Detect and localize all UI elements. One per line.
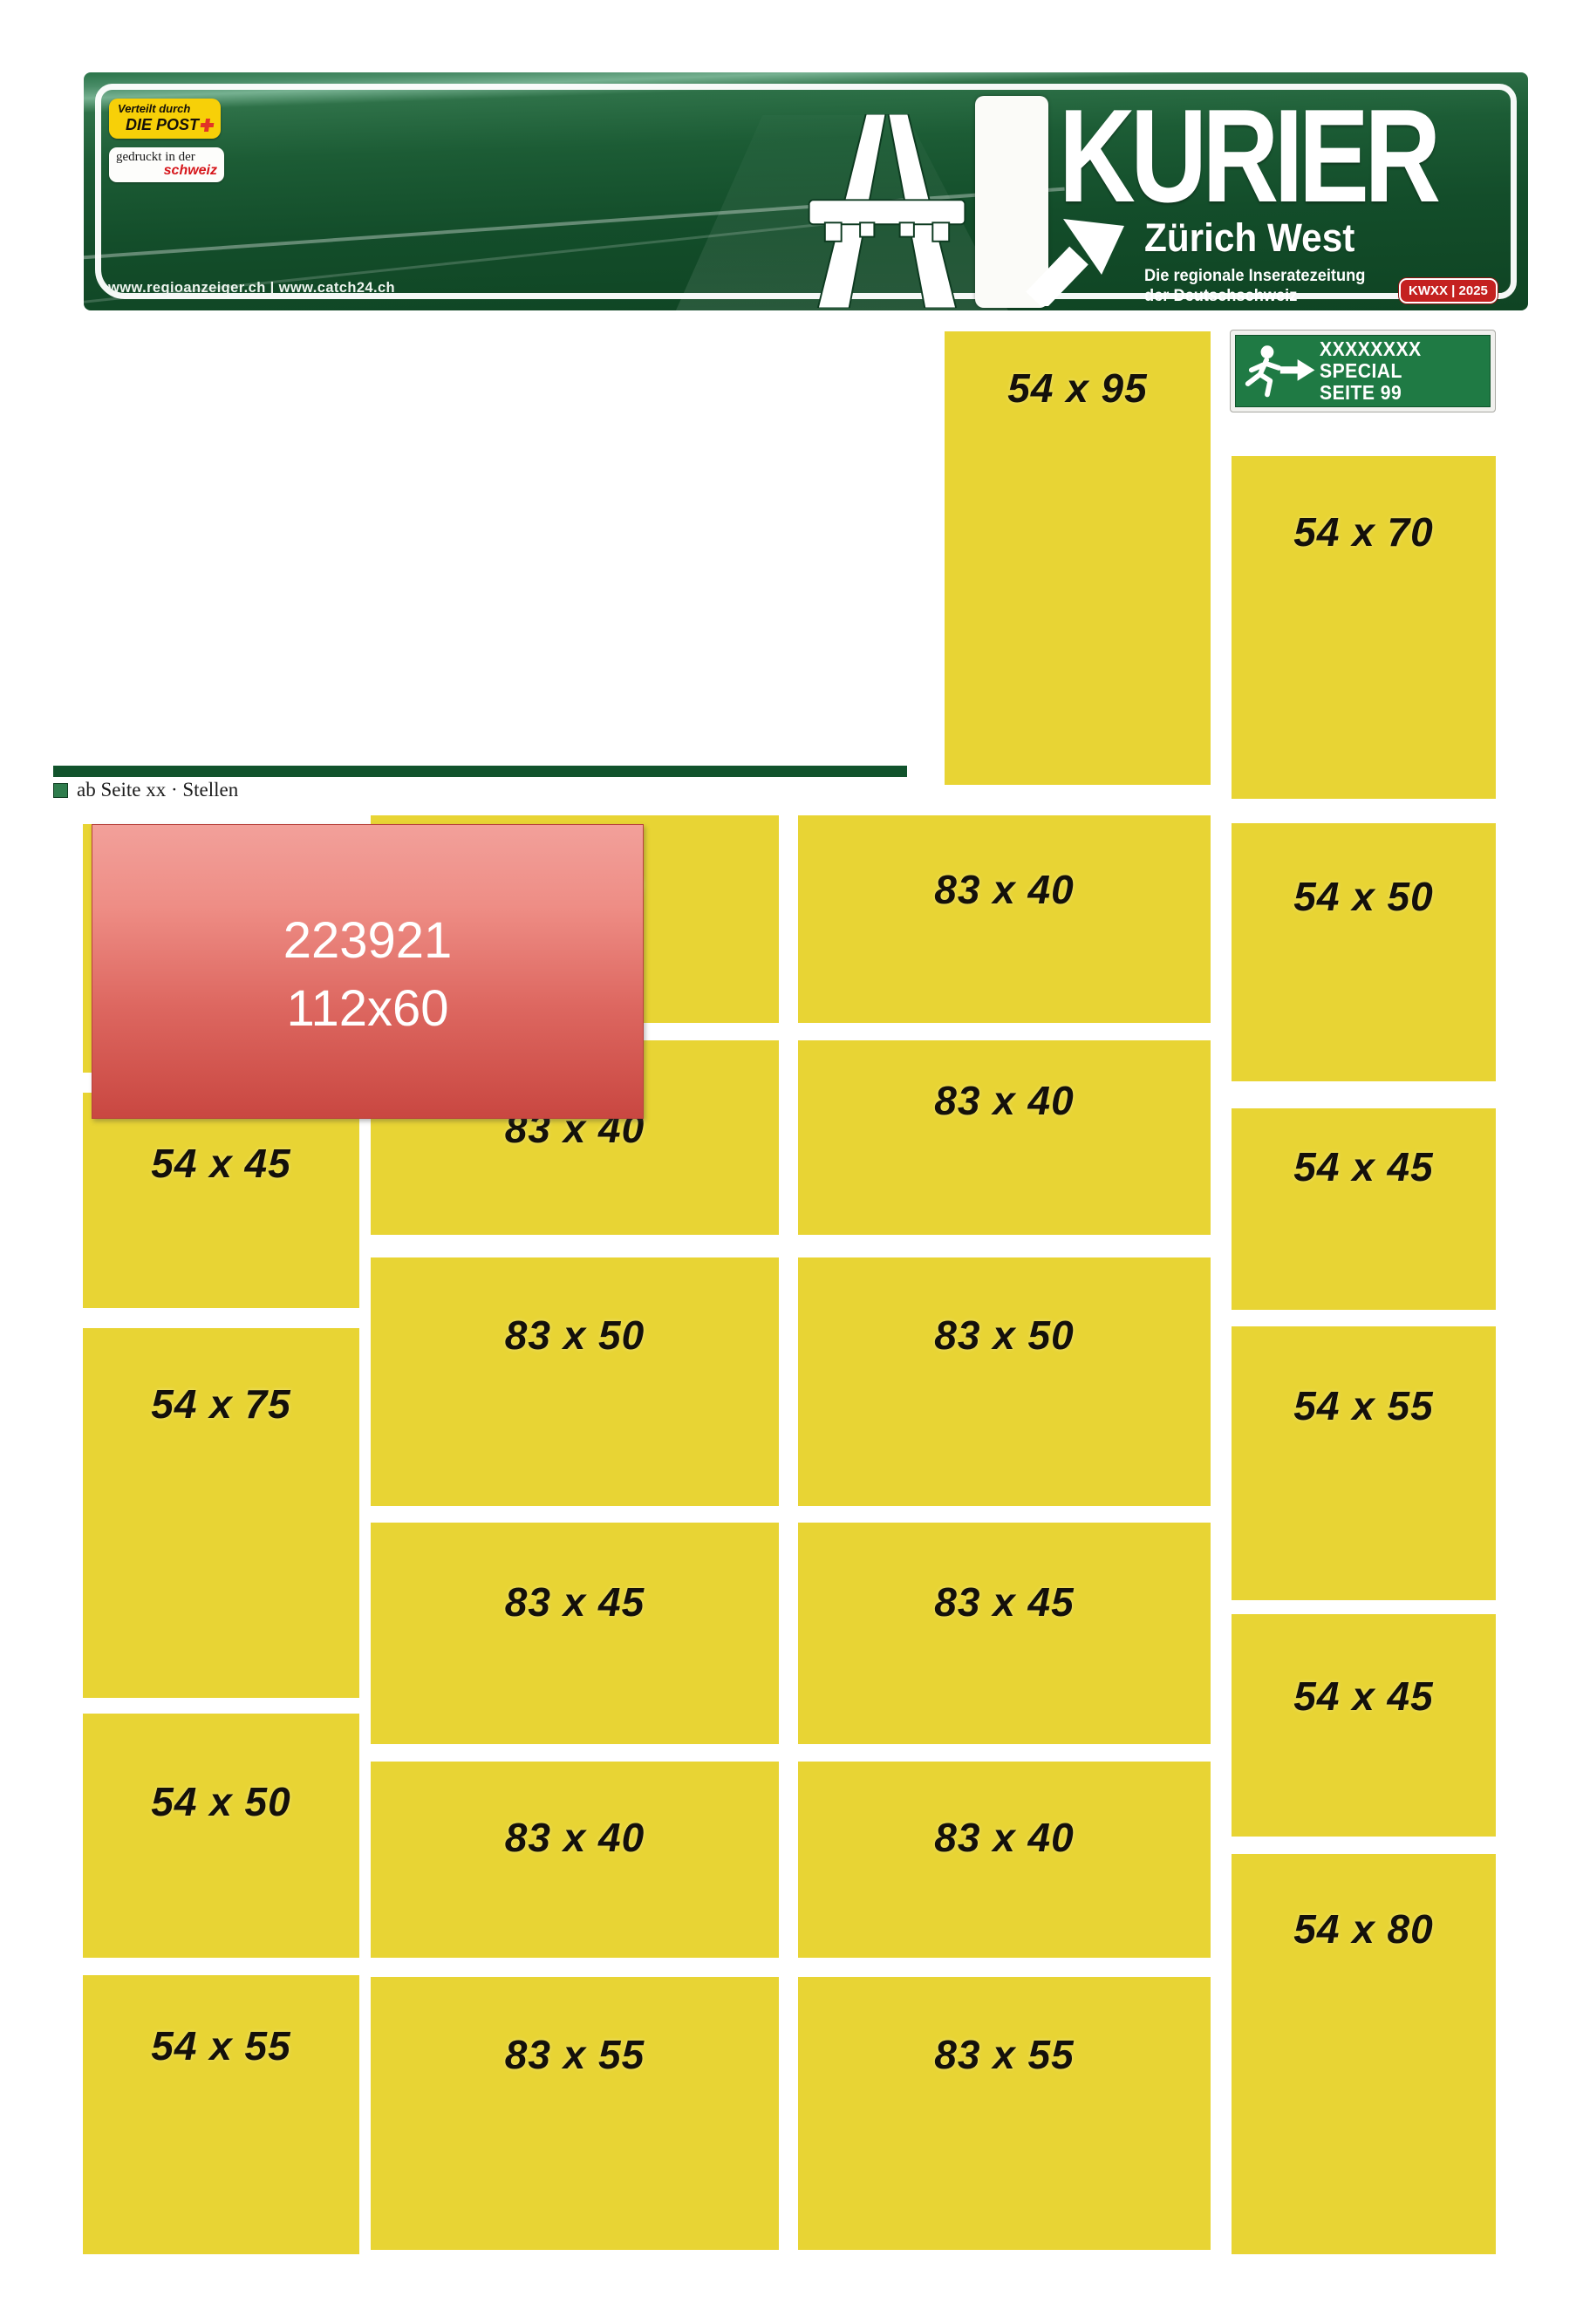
exit-runner-icon — [1239, 343, 1320, 400]
ad-slot-83x40-c3r1: 83 x 40 — [798, 815, 1211, 1023]
ad-slot-54x50: 54 x 50 — [1232, 823, 1496, 1081]
section-label: ab Seite xx · Stellen — [77, 779, 238, 801]
ad-slot-83x40-c3r2: 83 x 40 — [798, 1040, 1211, 1235]
section-bullet-icon — [53, 783, 68, 798]
ad-slot-54x45-2: 54 x 45 — [1232, 1614, 1496, 1837]
section-divider-bar — [53, 766, 907, 777]
ad-slot-54x45: 54 x 45 — [1232, 1108, 1496, 1310]
printed-in-switzerland-badge: gedruckt in der schweiz — [109, 147, 224, 182]
section-legend: ab Seite xx · Stellen — [53, 779, 238, 801]
sign-line3: SEITE 99 — [1320, 382, 1422, 404]
motorway-icon — [808, 114, 966, 308]
post-badge-line2-wrap: DIE POST — [118, 116, 214, 134]
header-banner: Verteilt durch DIE POST gedruckt in der … — [84, 72, 1528, 310]
week-year-badge: KWXX | 2025 — [1399, 278, 1498, 303]
special-page-sign: XXXXXXXX SPECIAL SEITE 99 — [1230, 330, 1496, 412]
arrow-up-right-icon — [1025, 215, 1131, 306]
ad-slot-54x75: 54 x 75 — [83, 1328, 359, 1698]
ad-slot-83x55-c3: 83 x 55 — [798, 1977, 1211, 2250]
ad-slot-83x40-c3r5: 83 x 40 — [798, 1762, 1211, 1958]
print-badge-line2: schweiz — [116, 163, 217, 179]
swiss-cross-icon — [200, 119, 215, 132]
masthead-title: KURIER — [1059, 90, 1436, 222]
ad-slot-83x50-c2: 83 x 50 — [371, 1257, 779, 1506]
ad-slot-54x70: 54 x 70 — [1232, 456, 1496, 799]
die-post-badge: Verteilt durch DIE POST — [109, 99, 221, 139]
region-name: Zürich West — [1144, 215, 1354, 261]
website-urls: www.regioanzeiger.ch | www.catch24.ch — [108, 280, 395, 296]
booking-number: 223921 — [283, 907, 453, 975]
ad-booking-overlay: 223921 112x60 — [92, 824, 644, 1119]
sign-line1: XXXXXXXX — [1320, 338, 1422, 360]
ad-slot-54x55: 54 x 55 — [1232, 1326, 1496, 1600]
ad-slot-83x45-c2: 83 x 45 — [371, 1523, 779, 1744]
post-badge-line2: DIE POST — [126, 116, 199, 133]
ad-slot-54x95: 54 x 95 — [945, 331, 1211, 785]
special-page-sign-text: XXXXXXXX SPECIAL SEITE 99 — [1320, 338, 1422, 404]
booking-size: 112x60 — [287, 975, 449, 1043]
sign-line2: SPECIAL — [1320, 360, 1422, 382]
ad-slot-54x50-left: 54 x 50 — [83, 1714, 359, 1958]
ad-slot-83x55-c2: 83 x 55 — [371, 1977, 779, 2250]
tagline-line1: Die regionale Inseratezeitung — [1144, 266, 1365, 286]
page: Verteilt durch DIE POST gedruckt in der … — [0, 0, 1583, 2324]
ad-slot-83x50-c3: 83 x 50 — [798, 1257, 1211, 1506]
special-page-sign-inner: XXXXXXXX SPECIAL SEITE 99 — [1235, 335, 1491, 407]
ad-slot-83x40-c2r5: 83 x 40 — [371, 1762, 779, 1958]
post-badge-line1: Verteilt durch — [118, 102, 214, 115]
ad-slot-83x45-c3: 83 x 45 — [798, 1523, 1211, 1744]
tagline-line2: der Deutschschweiz — [1144, 286, 1365, 306]
ad-slot-54x55-left: 54 x 55 — [83, 1975, 359, 2254]
tagline: Die regionale Inseratezeitung der Deutsc… — [1144, 266, 1365, 306]
ad-slot-54x80: 54 x 80 — [1232, 1854, 1496, 2254]
ad-slot-54x45-left: 54 x 45 — [83, 1093, 359, 1308]
